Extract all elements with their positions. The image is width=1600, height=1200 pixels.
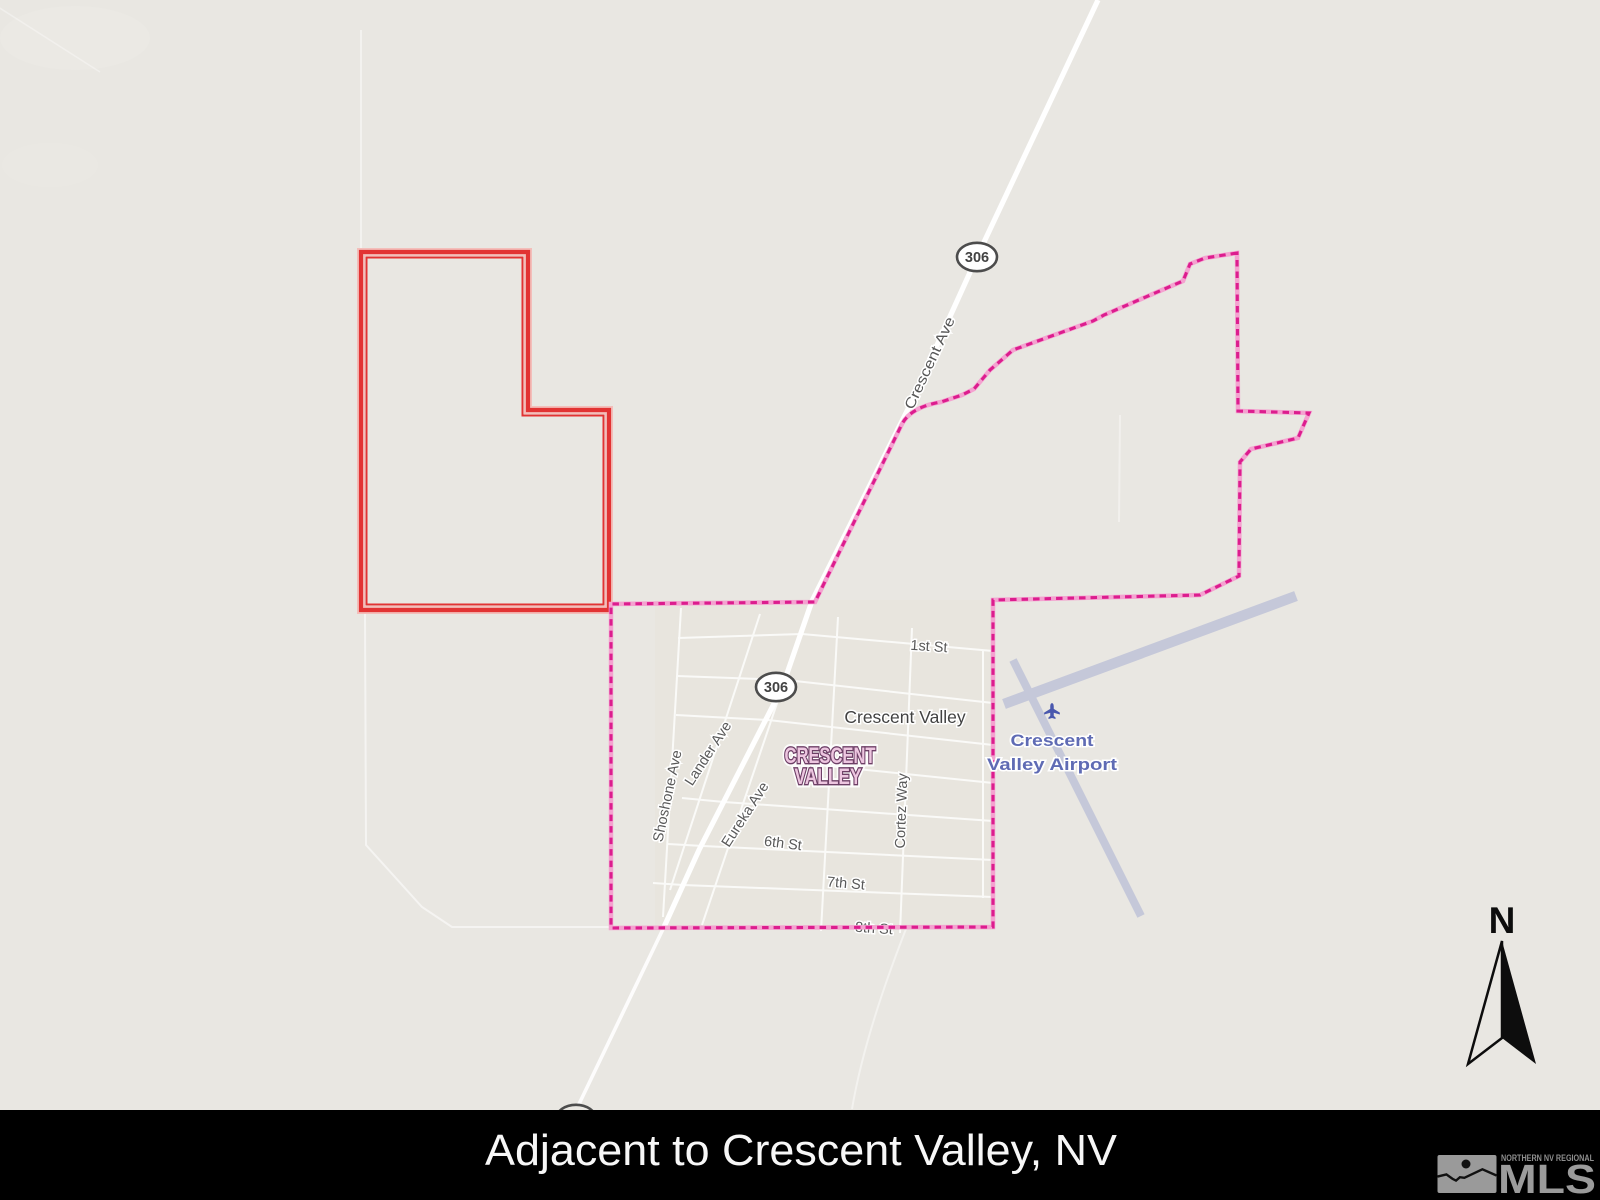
svg-text:Adjacent to Crescent Valley, N: Adjacent to Crescent Valley, NV bbox=[485, 1126, 1118, 1175]
svg-text:Crescent: Crescent bbox=[1011, 732, 1095, 750]
svg-text:VALLEY: VALLEY bbox=[795, 764, 862, 789]
svg-text:Cortez Way: Cortez Way bbox=[893, 772, 912, 848]
svg-text:306: 306 bbox=[965, 250, 989, 266]
svg-text:1st St: 1st St bbox=[910, 638, 948, 657]
svg-text:7th St: 7th St bbox=[826, 874, 865, 893]
svg-text:306: 306 bbox=[764, 680, 788, 696]
svg-text:Valley Airport: Valley Airport bbox=[987, 756, 1118, 774]
svg-text:N: N bbox=[1489, 900, 1516, 941]
svg-text:MLS: MLS bbox=[1498, 1156, 1596, 1200]
svg-text:Crescent Valley: Crescent Valley bbox=[844, 707, 966, 727]
